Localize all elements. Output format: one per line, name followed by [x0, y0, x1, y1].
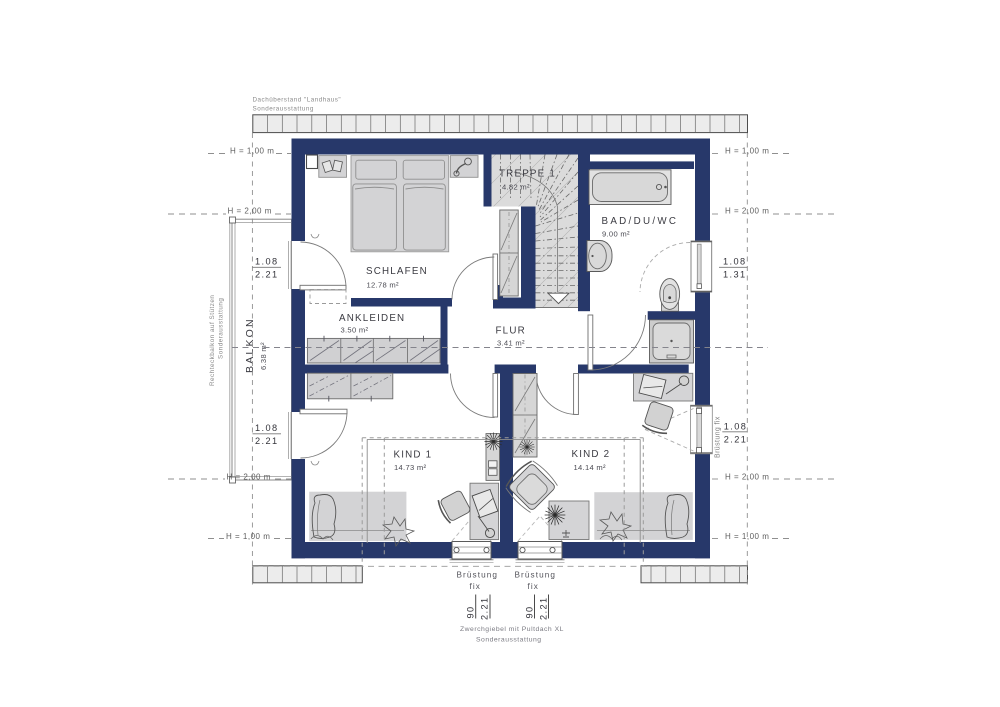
- svg-text:1.08: 1.08: [255, 257, 278, 267]
- svg-text:BALKON: BALKON: [244, 317, 256, 373]
- svg-text:1.31: 1.31: [723, 270, 746, 280]
- svg-text:BAD/DU/WC: BAD/DU/WC: [602, 216, 679, 227]
- svg-text:1.08: 1.08: [723, 257, 746, 267]
- svg-text:2.21: 2.21: [480, 597, 490, 620]
- svg-text:KIND 1: KIND 1: [394, 449, 433, 460]
- svg-text:Brüstung: Brüstung: [457, 571, 499, 580]
- svg-text:2.21: 2.21: [255, 270, 278, 280]
- svg-text:Zwerchgiebel mit Pultdach XL: Zwerchgiebel mit Pultdach XL: [460, 626, 564, 633]
- svg-text:H = 2,00 m: H = 2,00 m: [227, 473, 271, 482]
- svg-text:3.41 m²: 3.41 m²: [497, 339, 525, 348]
- svg-text:fix: fix: [470, 582, 482, 591]
- svg-text:SCHLAFEN: SCHLAFEN: [366, 266, 428, 277]
- svg-text:Brüstung: Brüstung: [515, 571, 557, 580]
- svg-text:TREPPE 1: TREPPE 1: [499, 169, 556, 180]
- svg-text:14.14 m²: 14.14 m²: [574, 463, 607, 472]
- svg-text:1.08: 1.08: [724, 422, 747, 432]
- svg-text:12.78 m²: 12.78 m²: [367, 281, 400, 290]
- svg-text:fix: fix: [528, 582, 540, 591]
- svg-text:Sonderausstattung: Sonderausstattung: [218, 298, 225, 359]
- svg-text:KIND 2: KIND 2: [572, 449, 611, 460]
- svg-text:ANKLEIDEN: ANKLEIDEN: [339, 313, 405, 324]
- svg-text:Sonderausstattung: Sonderausstattung: [253, 106, 314, 113]
- svg-text:H = 1,00 m: H = 1,00 m: [230, 147, 274, 156]
- svg-text:2.21: 2.21: [538, 597, 548, 620]
- svg-text:6.38 m²: 6.38 m²: [259, 342, 268, 370]
- svg-text:Sonderausstattung: Sonderausstattung: [476, 637, 542, 644]
- svg-text:H = 2,00 m: H = 2,00 m: [725, 473, 769, 482]
- svg-text:9.00 m²: 9.00 m²: [602, 230, 630, 239]
- svg-text:90: 90: [524, 605, 534, 618]
- svg-text:90: 90: [466, 605, 476, 618]
- svg-text:H = 2,00 m: H = 2,00 m: [228, 207, 272, 216]
- svg-text:4.82 m²: 4.82 m²: [502, 183, 530, 192]
- svg-text:2.21: 2.21: [724, 435, 747, 445]
- svg-text:H = 1,00 m: H = 1,00 m: [725, 532, 769, 541]
- svg-text:1.08: 1.08: [255, 423, 278, 433]
- svg-text:2.21: 2.21: [255, 436, 278, 446]
- svg-text:3.50 m²: 3.50 m²: [341, 326, 369, 335]
- svg-text:H = 1,00 m: H = 1,00 m: [226, 532, 270, 541]
- svg-text:H = 2,00 m: H = 2,00 m: [725, 207, 769, 216]
- svg-text:Brüstung fix: Brüstung fix: [715, 416, 722, 458]
- svg-text:H = 1,00 m: H = 1,00 m: [725, 147, 769, 156]
- svg-text:FLUR: FLUR: [496, 326, 526, 337]
- svg-text:Rechteckbalkon auf Stützen: Rechteckbalkon auf Stützen: [209, 295, 216, 386]
- svg-text:14.73 m²: 14.73 m²: [394, 463, 427, 472]
- svg-text:Dachüberstand "Landhaus": Dachüberstand "Landhaus": [253, 97, 342, 104]
